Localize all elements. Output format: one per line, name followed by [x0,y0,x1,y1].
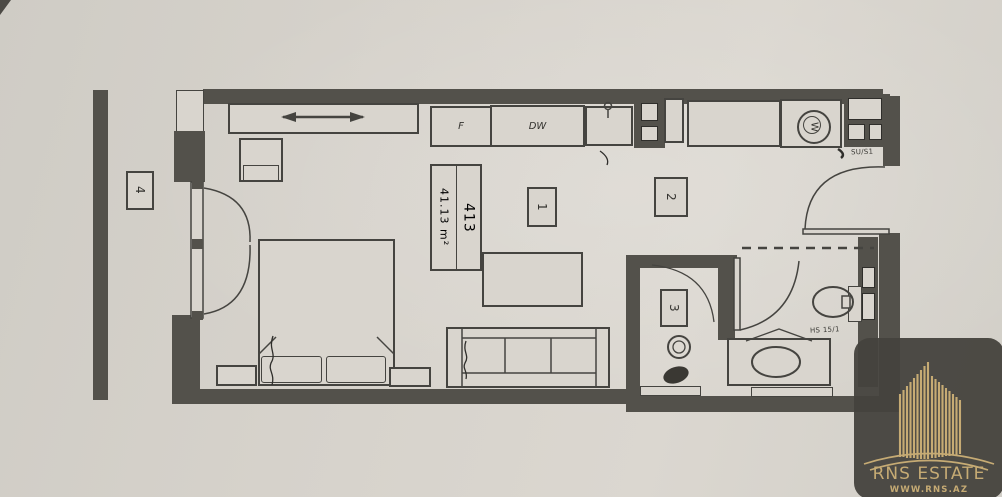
wall-left-upper [174,131,205,182]
unit-number-cell: 413 [457,166,481,269]
rns-estate-watermark: RNS ESTATE WWW.RNS.AZ [854,338,1002,497]
wall-bathroom-divider [718,257,735,340]
room-2-label: 2 [654,177,688,217]
nightstand-right [389,367,431,387]
room-3-number: 3 [667,304,681,313]
room-4-label: 4 [126,171,154,210]
french-doors [191,180,250,320]
plan-linework [0,0,1002,497]
wall-bathroom-left [626,255,640,410]
entry-door [803,167,889,234]
electrical-annotation: SU/S1 [851,148,874,157]
bathroom-door [734,258,799,330]
dishwasher: DW [490,105,585,147]
washer-drum-inner-icon [803,116,821,134]
pillow [326,356,386,383]
total-area-cell: 41.13 m² [432,166,457,269]
fridge: F [430,106,492,147]
sofa [446,327,610,388]
room-4-number: 4 [133,186,147,195]
washbasin-counter [727,338,831,386]
wall-bottom-living [172,389,650,404]
total-area-value: 41.13 m² [437,188,450,246]
dishwasher-label: DW [529,121,547,132]
cabinet-slot [869,124,882,140]
kitchen-counter [687,100,781,147]
scanned-floorplan-page: 4 F DW SU/S1 1 2 3 [0,0,1002,497]
bath-threshold [751,387,833,397]
watermark-website-text: WWW.RNS.AZ [854,485,1002,495]
armchair-seat [243,165,279,181]
wardrobe [228,103,419,134]
pedestal-sink [661,336,691,387]
room-1-label: 1 [527,187,557,227]
cabinet-slot [641,126,658,141]
scan-corner-artifact [0,0,11,15]
cabinet-slot [848,124,865,140]
unit-number-value: 413 [460,203,476,233]
towel-radiator-slot [862,267,875,288]
fridge-label: F [458,121,464,132]
bath-threshold [640,386,701,396]
cabinet-slot [641,103,658,121]
cabinet-slot [848,98,882,120]
tall-cabinet [664,98,684,143]
balcony-edge-wall [93,90,108,400]
room-3-label: 3 [660,289,688,327]
heater-annotation: HS 15/1 [810,325,840,335]
nightstand-left [216,365,257,386]
toilet-tank [848,286,862,322]
room-1-number: 1 [535,203,549,212]
watermark-brand-text: RNS ESTATE [854,464,1002,484]
toilet [813,287,853,317]
towel-radiator-slot [862,293,875,320]
room-2-number: 2 [664,193,678,202]
wall-corner-niche [176,90,204,132]
area-label: 41.13 m² 413 [430,164,482,271]
pillow [261,356,322,383]
kitchen-sink [585,106,633,146]
coffee-table [482,252,583,307]
